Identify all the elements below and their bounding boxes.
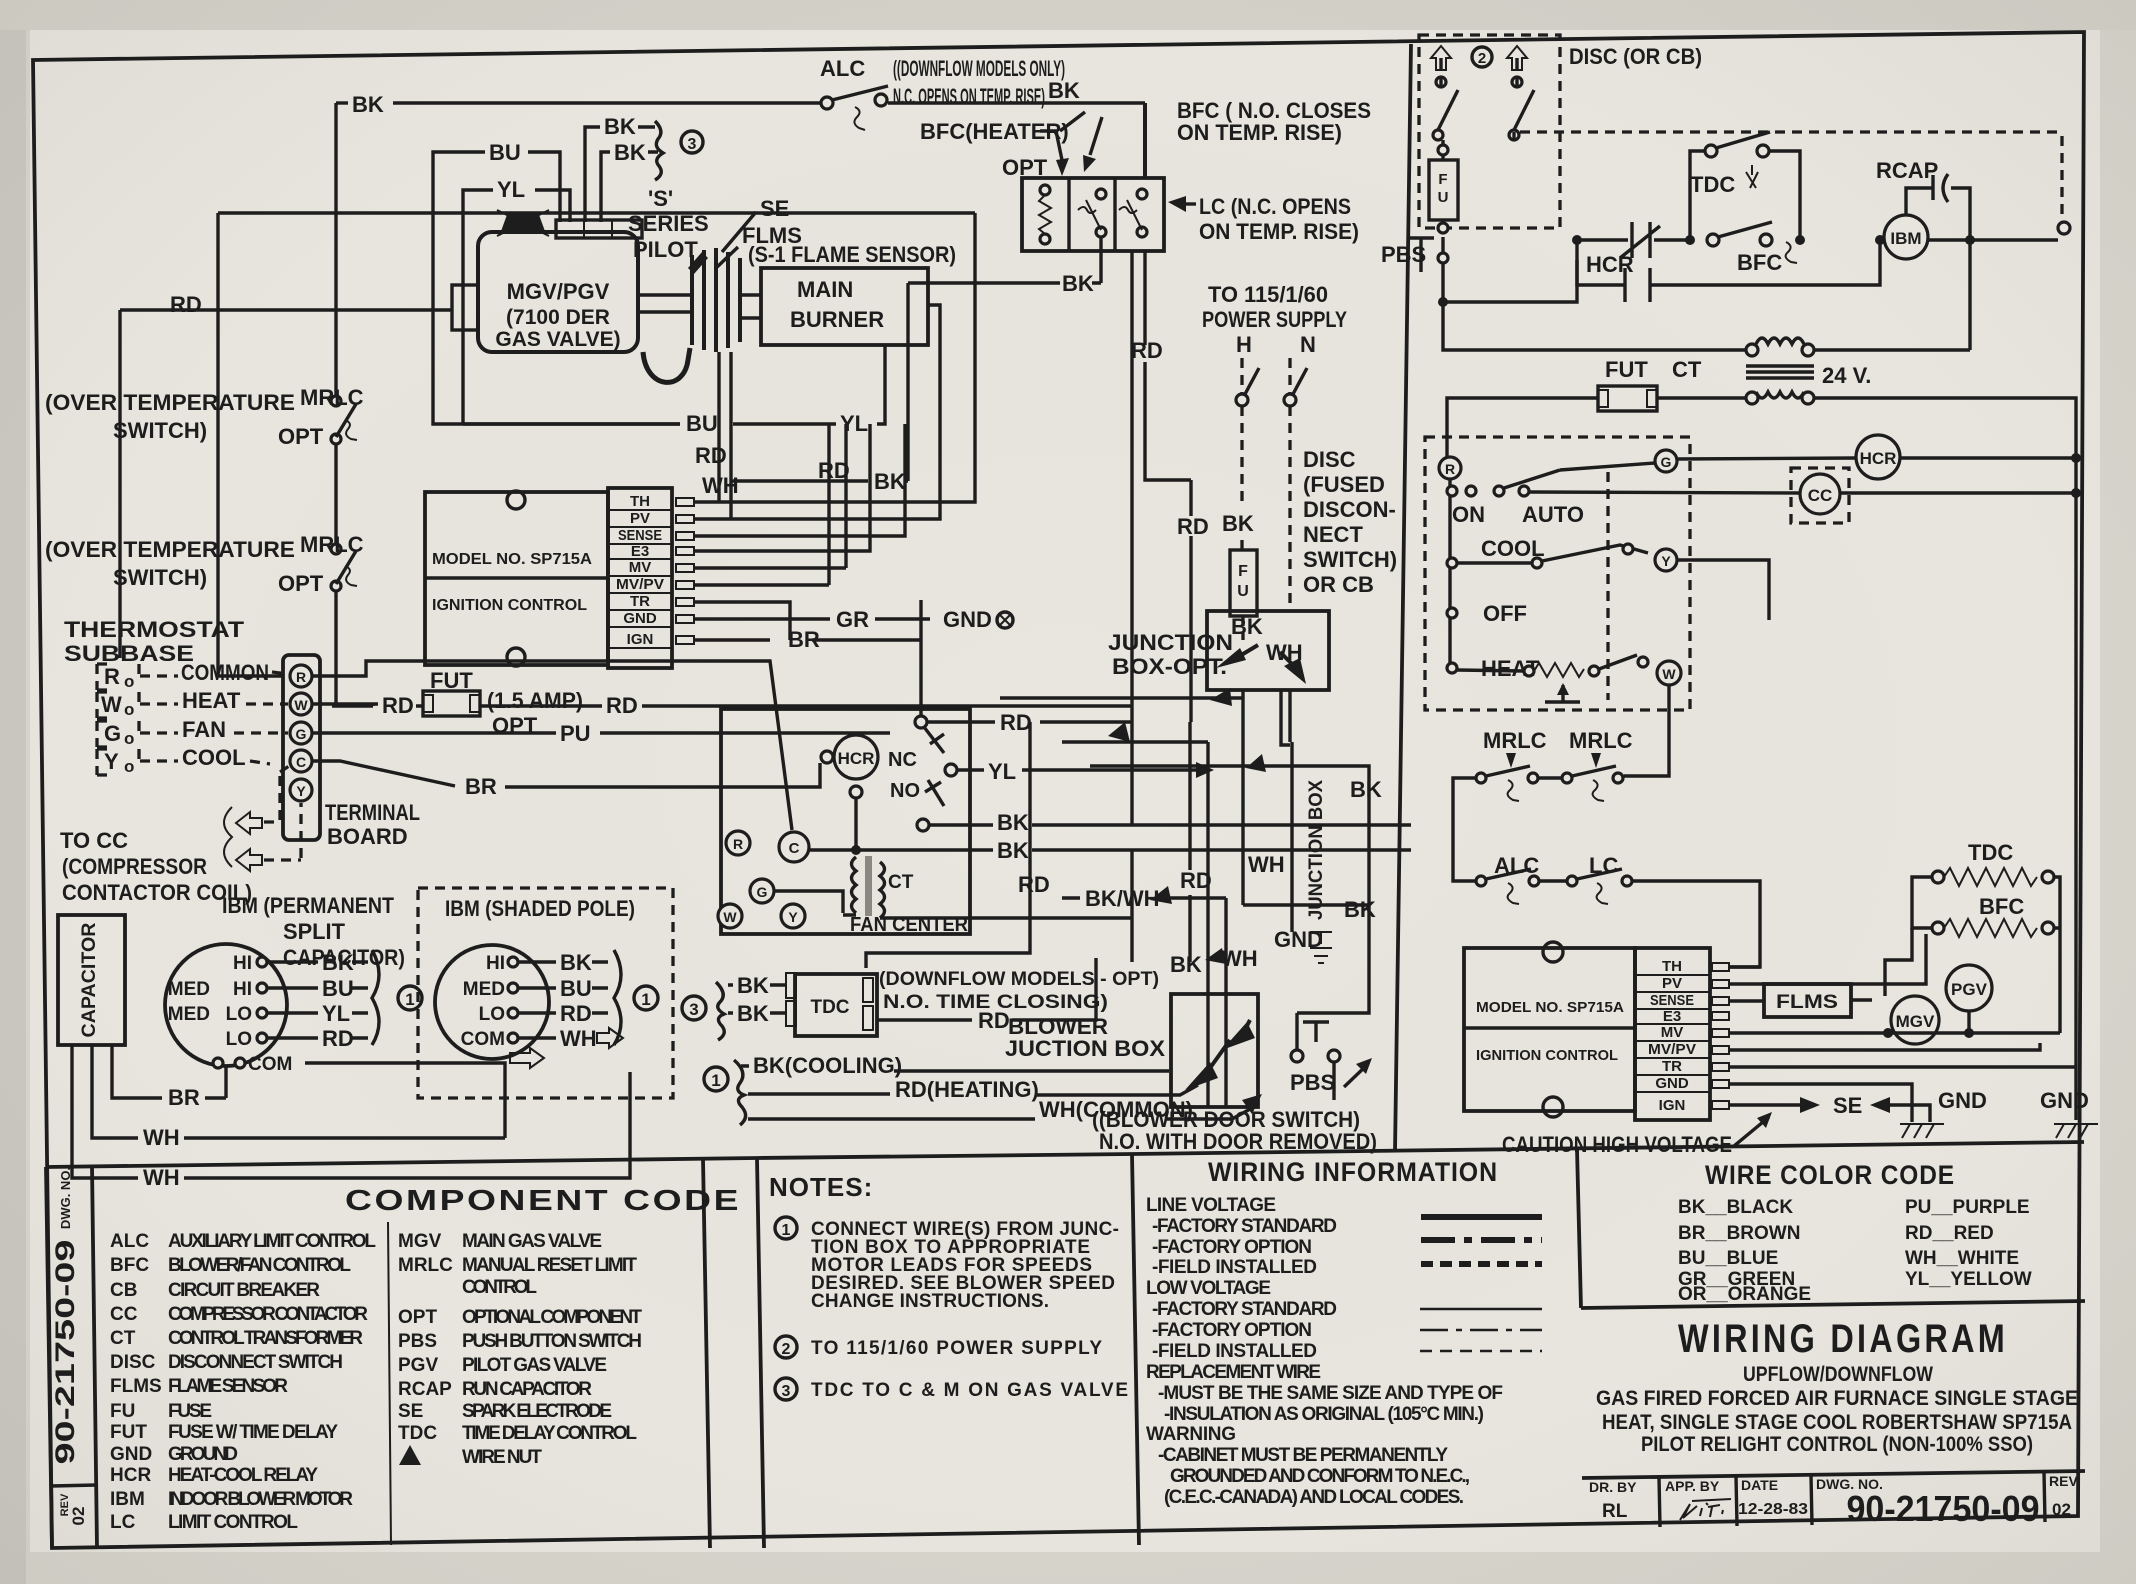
svg-text:HCR: HCR — [110, 1465, 151, 1486]
svg-text:DISC (OR CB): DISC (OR CB) — [1569, 44, 1702, 69]
svg-text:MV/PV: MV/PV — [1648, 1041, 1696, 1058]
svg-text:DATE: DATE — [1741, 1477, 1778, 1493]
svg-text:RD: RD — [978, 1008, 1010, 1033]
svg-text:BK: BK — [352, 92, 384, 117]
svg-text:3: 3 — [688, 136, 697, 153]
svg-text:02: 02 — [69, 1507, 88, 1526]
svg-text:(1.5 AMP): (1.5 AMP) — [487, 688, 583, 713]
svg-text:MODEL NO. SP715A: MODEL NO. SP715A — [432, 551, 592, 568]
svg-text:CC: CC — [1808, 486, 1833, 505]
svg-text:WIRE NUT: WIRE NUT — [462, 1447, 542, 1468]
svg-text:BK/WH: BK/WH — [1085, 886, 1160, 911]
svg-text:PBS: PBS — [398, 1331, 437, 1352]
svg-text:PILOT RELIGHT CONTROL (NON-100: PILOT RELIGHT CONTROL (NON-100% SSO) — [1641, 1433, 2033, 1456]
svg-text:BK: BK — [874, 469, 906, 494]
svg-text:REPLACEMENT WIRE: REPLACEMENT WIRE — [1146, 1362, 1321, 1383]
svg-text:RD: RD — [1131, 338, 1163, 363]
svg-text:GND: GND — [623, 610, 657, 627]
svg-text:1: 1 — [405, 990, 414, 1009]
svg-text:MRLC: MRLC — [300, 532, 364, 557]
svg-text:(C.E.C.-CANADA) AND LOCAL CODE: (C.E.C.-CANADA) AND LOCAL CODES. — [1164, 1487, 1464, 1508]
svg-text:1: 1 — [641, 990, 650, 1009]
svg-text:N: N — [1300, 332, 1316, 357]
svg-text:RCAP: RCAP — [398, 1379, 452, 1400]
svg-text:BFC: BFC — [110, 1255, 149, 1276]
svg-text:COOL: COOL — [182, 745, 246, 770]
svg-text:DISCON-: DISCON- — [1303, 497, 1396, 522]
svg-text:RD: RD — [606, 693, 638, 718]
svg-text:NO: NO — [890, 780, 920, 802]
svg-text:MODEL NO. SP715A: MODEL NO. SP715A — [1476, 999, 1624, 1016]
svg-text:AUXILIARY LIMIT CONTROL: AUXILIARY LIMIT CONTROL — [168, 1231, 376, 1252]
svg-text:LO: LO — [226, 1029, 252, 1050]
svg-text:TO CC: TO CC — [60, 828, 128, 853]
svg-text:MAIN GAS VALVE: MAIN GAS VALVE — [462, 1231, 602, 1252]
svg-text:YL: YL — [497, 177, 525, 202]
svg-text:TIME DELAY CONTROL: TIME DELAY CONTROL — [462, 1423, 637, 1444]
svg-text:RD: RD — [1018, 872, 1050, 897]
svg-text:MGV: MGV — [398, 1231, 442, 1252]
svg-text:MAIN: MAIN — [797, 277, 853, 302]
svg-text:WH: WH — [1221, 946, 1258, 971]
svg-text:BOARD: BOARD — [327, 824, 408, 849]
svg-text:TDC: TDC — [1690, 172, 1735, 197]
svg-text:SE: SE — [1833, 1093, 1862, 1118]
svg-text:PV: PV — [1662, 975, 1682, 992]
svg-text:LO: LO — [226, 1004, 252, 1025]
svg-text:DISC: DISC — [1303, 447, 1356, 472]
svg-text:MGV: MGV — [1896, 1012, 1935, 1031]
svg-text:LC (N.C. OPENS: LC (N.C. OPENS — [1199, 194, 1351, 219]
svg-text:W: W — [723, 909, 737, 925]
svg-text:IBM (PERMANENT: IBM (PERMANENT — [222, 893, 394, 918]
svg-text:BK: BK — [737, 1001, 769, 1026]
svg-text:YL: YL — [322, 1001, 350, 1026]
svg-text:LOW VOLTAGE: LOW VOLTAGE — [1146, 1278, 1271, 1299]
svg-text:LO: LO — [479, 1004, 505, 1025]
svg-text:(DOWNFLOW MODELS - OPT): (DOWNFLOW MODELS - OPT) — [879, 969, 1159, 990]
svg-text:RD: RD — [322, 1026, 354, 1051]
svg-text:BK(COOLING): BK(COOLING) — [753, 1053, 902, 1078]
svg-text:G: G — [1661, 454, 1672, 470]
svg-text:LC: LC — [110, 1512, 136, 1533]
svg-text:LIMIT CONTROL: LIMIT CONTROL — [168, 1512, 298, 1533]
svg-text:PILOT GAS VALVE: PILOT GAS VALVE — [462, 1355, 607, 1376]
svg-text:Y: Y — [104, 749, 119, 774]
svg-text:BFC: BFC — [1979, 894, 2024, 919]
svg-text:TDC: TDC — [1968, 840, 2013, 865]
svg-text:BU__BLUE: BU__BLUE — [1678, 1248, 1778, 1269]
svg-text:3: 3 — [782, 1383, 791, 1400]
svg-text:F: F — [1438, 171, 1447, 188]
svg-text:BK: BK — [614, 140, 646, 165]
svg-text:IBM: IBM — [110, 1489, 145, 1510]
svg-text:FLMS: FLMS — [110, 1376, 162, 1397]
svg-text:GAS FIRED FORCED AIR FURNACE S: GAS FIRED FORCED AIR FURNACE SINGLE STAG… — [1596, 1387, 2078, 1410]
svg-text:COOL: COOL — [1481, 536, 1545, 561]
svg-text:Y: Y — [788, 909, 798, 925]
svg-text:BK: BK — [1231, 614, 1263, 639]
svg-text:FUT: FUT — [430, 668, 473, 693]
svg-text:IBM: IBM — [1890, 229, 1921, 248]
svg-text:RD: RD — [382, 693, 414, 718]
svg-text:CT: CT — [1672, 357, 1702, 382]
svg-text:HEAT: HEAT — [182, 688, 241, 713]
svg-text:FUSE: FUSE — [168, 1401, 212, 1422]
svg-text:BU: BU — [560, 976, 592, 1001]
svg-text:GND: GND — [943, 607, 992, 632]
svg-text:RD: RD — [1177, 514, 1209, 539]
svg-text:TH: TH — [1662, 958, 1682, 975]
svg-text:12-28-83: 12-28-83 — [1738, 1501, 1808, 1518]
svg-text:OPT: OPT — [278, 424, 324, 449]
svg-text:NC: NC — [888, 749, 917, 771]
svg-text:o: o — [124, 700, 134, 719]
svg-text:PGV: PGV — [1951, 980, 1988, 999]
svg-text:CONTROL TRANSFORMER: CONTROL TRANSFORMER — [168, 1328, 363, 1349]
svg-text:SPLIT: SPLIT — [283, 919, 346, 944]
svg-text:IGN: IGN — [627, 631, 654, 648]
svg-text:((DOWNFLOW MODELS ONLY): ((DOWNFLOW MODELS ONLY) — [893, 56, 1065, 81]
svg-text:SWITCH): SWITCH) — [113, 565, 207, 590]
svg-text:HI: HI — [233, 979, 252, 1000]
svg-text:TH: TH — [630, 493, 650, 510]
svg-text:GROUNDED AND CONFORM TO N.E.C.: GROUNDED AND CONFORM TO N.E.C., — [1170, 1466, 1470, 1487]
svg-text:-FIELD INSTALLED: -FIELD INSTALLED — [1152, 1341, 1317, 1362]
svg-text:BK__BLACK: BK__BLACK — [1678, 1197, 1793, 1218]
svg-text:C: C — [296, 754, 306, 770]
svg-text:IGN: IGN — [1659, 1097, 1686, 1114]
svg-text:APP. BY: APP. BY — [1665, 1478, 1720, 1494]
svg-text:JUCTION BOX: JUCTION BOX — [1005, 1036, 1165, 1061]
svg-text:REV: REV — [2049, 1473, 2078, 1489]
svg-text:IGNITION CONTROL: IGNITION CONTROL — [432, 597, 587, 614]
svg-text:o: o — [124, 729, 134, 748]
svg-text:YL__YELLOW: YL__YELLOW — [1905, 1269, 2032, 1290]
svg-text:G: G — [296, 726, 307, 742]
svg-text:MRLC: MRLC — [300, 385, 364, 410]
svg-text:o: o — [124, 672, 134, 691]
svg-text:TDC: TDC — [810, 997, 849, 1018]
svg-text:WH: WH — [560, 1026, 597, 1051]
svg-text:TO 115/1/60 POWER SUPPLY: TO 115/1/60 POWER SUPPLY — [811, 1338, 1102, 1359]
svg-text:N.C. OPENS ON TEMP. RISE): N.C. OPENS ON TEMP. RISE) — [893, 84, 1045, 109]
svg-text:R: R — [296, 669, 306, 685]
svg-text:BK: BK — [604, 114, 636, 139]
svg-text:ALC: ALC — [110, 1231, 149, 1252]
svg-text:'S': 'S' — [648, 186, 673, 211]
svg-text:MRLC: MRLC — [1569, 728, 1633, 753]
svg-text:E3: E3 — [631, 543, 649, 560]
svg-text:E3: E3 — [1663, 1008, 1681, 1025]
svg-text:(FUSED: (FUSED — [1303, 472, 1385, 497]
svg-text:W: W — [101, 692, 122, 717]
svg-text:RD: RD — [1000, 710, 1032, 735]
svg-text:HEAT, SINGLE STAGE COOL ROBERT: HEAT, SINGLE STAGE COOL ROBERTSHAW SP715… — [1602, 1411, 2072, 1434]
svg-text:SUBBASE: SUBBASE — [64, 641, 194, 666]
svg-text:(7100 DER: (7100 DER — [506, 306, 610, 329]
svg-text:BU: BU — [322, 976, 354, 1001]
svg-text:BK: BK — [1350, 777, 1382, 802]
svg-text:Y: Y — [1661, 553, 1671, 569]
svg-text:BK: BK — [997, 810, 1029, 835]
svg-text:OR__ORANGE: OR__ORANGE — [1678, 1284, 1811, 1305]
svg-text:R: R — [1445, 461, 1455, 477]
svg-text:3: 3 — [689, 1000, 698, 1019]
svg-text:HEAT-COOL RELAY: HEAT-COOL RELAY — [168, 1465, 318, 1486]
svg-text:THERMOSTAT: THERMOSTAT — [64, 617, 245, 642]
svg-text:24 V.: 24 V. — [1822, 363, 1871, 388]
svg-text:COMMON: COMMON — [181, 660, 269, 685]
svg-text:BURNER: BURNER — [790, 307, 884, 332]
svg-text:C: C — [789, 840, 800, 857]
svg-text:OFF: OFF — [1483, 601, 1527, 626]
svg-text:WARNING: WARNING — [1146, 1424, 1236, 1445]
svg-text:POWER SUPPLY: POWER SUPPLY — [1202, 307, 1347, 332]
svg-text:PU: PU — [560, 721, 591, 746]
svg-text:WIRING DIAGRAM: WIRING DIAGRAM — [1678, 1317, 2008, 1361]
svg-text:COM: COM — [248, 1054, 292, 1075]
svg-text:CB: CB — [110, 1280, 137, 1301]
svg-text:U: U — [1438, 189, 1449, 206]
svg-text:BU: BU — [489, 140, 521, 165]
svg-text:F: F — [1238, 563, 1248, 580]
svg-text:(S-1 FLAME SENSOR): (S-1 FLAME SENSOR) — [748, 242, 956, 267]
svg-text:RD: RD — [560, 1001, 592, 1026]
svg-text:PBS: PBS — [1290, 1070, 1335, 1095]
svg-text:BOX-OPT.: BOX-OPT. — [1112, 654, 1227, 679]
svg-text:RD: RD — [818, 458, 850, 483]
svg-text:IBM (SHADED POLE): IBM (SHADED POLE) — [445, 896, 635, 921]
svg-text:MED: MED — [463, 979, 505, 1000]
svg-text:BR: BR — [465, 774, 497, 799]
svg-text:CAPACITOR: CAPACITOR — [79, 922, 100, 1037]
svg-text:PUSH BUTTON SWITCH: PUSH BUTTON SWITCH — [462, 1331, 642, 1352]
svg-text:OR CB: OR CB — [1303, 572, 1374, 597]
svg-text:2: 2 — [1478, 50, 1486, 67]
svg-text:SERIES: SERIES — [628, 211, 709, 236]
svg-text:BK: BK — [997, 838, 1029, 863]
svg-text:BK: BK — [1344, 897, 1376, 922]
svg-text:MED: MED — [168, 1004, 210, 1025]
svg-text:NOTES:: NOTES: — [769, 1172, 873, 1202]
svg-text:-FACTORY STANDARD: -FACTORY STANDARD — [1152, 1216, 1337, 1237]
svg-text:COMPONENT CODE: COMPONENT CODE — [345, 1185, 741, 1217]
svg-text:2: 2 — [782, 1341, 791, 1358]
svg-text:GROUND: GROUND — [168, 1444, 238, 1465]
svg-text:-MUST BE THE SAME SIZE AND TYP: -MUST BE THE SAME SIZE AND TYPE OF — [1158, 1383, 1503, 1404]
svg-text:FAN: FAN — [182, 717, 226, 742]
svg-text:INDOOR BLOWER MOTOR: INDOOR BLOWER MOTOR — [168, 1489, 353, 1510]
svg-text:GND: GND — [1938, 1088, 1987, 1113]
svg-text:HI: HI — [486, 953, 505, 974]
svg-text:Y: Y — [296, 783, 306, 799]
svg-text:RUN CAPACITOR: RUN CAPACITOR — [462, 1379, 592, 1400]
svg-text:DISC: DISC — [110, 1352, 156, 1373]
svg-text:CT: CT — [888, 872, 914, 893]
svg-text:COMPRESSOR CONTACTOR: COMPRESSOR CONTACTOR — [168, 1304, 368, 1325]
svg-text:BK: BK — [322, 950, 354, 975]
svg-text:-FACTORY OPTION: -FACTORY OPTION — [1152, 1320, 1312, 1341]
svg-text:RD: RD — [695, 443, 727, 468]
svg-text:BK: BK — [560, 950, 592, 975]
svg-text:U: U — [1237, 583, 1249, 600]
svg-text:SWITCH): SWITCH) — [1303, 547, 1397, 572]
svg-text:-FACTORY OPTION: -FACTORY OPTION — [1152, 1237, 1312, 1258]
svg-text:BK: BK — [737, 973, 769, 998]
svg-text:N.O. WITH DOOR REMOVED): N.O. WITH DOOR REMOVED) — [1099, 1129, 1377, 1154]
svg-text:GR: GR — [836, 607, 869, 632]
svg-text:DR. BY: DR. BY — [1589, 1479, 1637, 1495]
svg-text:MGV/PGV: MGV/PGV — [507, 279, 610, 304]
svg-text:FUT: FUT — [1605, 357, 1648, 382]
svg-text:BK: BK — [1048, 78, 1080, 103]
svg-text:G: G — [757, 884, 768, 900]
svg-text:WH: WH — [1248, 852, 1285, 877]
svg-text:JUNCTION: JUNCTION — [1108, 630, 1233, 655]
svg-text:CC: CC — [110, 1304, 138, 1325]
svg-text:FUT: FUT — [110, 1422, 147, 1443]
svg-text:LINE VOLTAGE: LINE VOLTAGE — [1146, 1195, 1276, 1216]
svg-text:o: o — [124, 757, 134, 776]
svg-text:G: G — [104, 721, 121, 746]
svg-text:FUSE W/ TIME DELAY: FUSE W/ TIME DELAY — [168, 1422, 338, 1443]
svg-text:90-21750-09: 90-21750-09 — [50, 1240, 80, 1465]
svg-text:TERMINAL: TERMINAL — [325, 800, 420, 825]
svg-text:BLOWER/FAN CONTROL: BLOWER/FAN CONTROL — [168, 1255, 351, 1276]
svg-text:BK: BK — [1222, 511, 1254, 536]
svg-text:(COMPRESSOR: (COMPRESSOR — [62, 854, 207, 879]
svg-text:YL: YL — [840, 411, 868, 436]
svg-text:BK: BK — [1170, 952, 1202, 977]
svg-text:YL: YL — [988, 759, 1016, 784]
svg-text:SPARK ELECTRODE: SPARK ELECTRODE — [462, 1401, 612, 1422]
svg-text:-FIELD INSTALLED: -FIELD INSTALLED — [1152, 1257, 1317, 1278]
svg-text:90-21750-09: 90-21750-09 — [1847, 1488, 2040, 1529]
svg-text:NECT: NECT — [1303, 522, 1363, 547]
svg-text:RD: RD — [170, 292, 202, 317]
svg-text:BK: BK — [1062, 271, 1094, 296]
svg-text:ON TEMP. RISE): ON TEMP. RISE) — [1177, 120, 1342, 145]
svg-text:OPT: OPT — [278, 571, 324, 596]
svg-text:BR: BR — [168, 1085, 200, 1110]
svg-text:SWITCH): SWITCH) — [113, 418, 207, 443]
svg-text:WIRE COLOR CODE: WIRE COLOR CODE — [1705, 1160, 1955, 1190]
svg-text:TR: TR — [630, 593, 650, 610]
svg-text:CHANGE INSTRUCTIONS.: CHANGE INSTRUCTIONS. — [811, 1291, 1049, 1312]
svg-text:SE: SE — [760, 196, 789, 221]
svg-text:HI: HI — [233, 953, 252, 974]
svg-text:WIRING INFORMATION: WIRING INFORMATION — [1208, 1157, 1498, 1187]
svg-text:SENSE: SENSE — [1650, 992, 1694, 1009]
svg-text:OPT: OPT — [398, 1307, 437, 1328]
svg-text:MRLC: MRLC — [398, 1255, 453, 1276]
svg-text:RCAP: RCAP — [1876, 158, 1938, 183]
svg-text:GND: GND — [2040, 1088, 2089, 1113]
svg-text:(OVER TEMPERATURE: (OVER TEMPERATURE — [45, 537, 295, 562]
svg-text:W: W — [1662, 666, 1676, 682]
svg-text:COM: COM — [461, 1029, 505, 1050]
svg-text:RL: RL — [1602, 1501, 1628, 1522]
svg-text:MED: MED — [168, 979, 210, 1000]
svg-text:BR: BR — [788, 627, 820, 652]
svg-text:CT: CT — [110, 1328, 136, 1349]
svg-text:-FACTORY STANDARD: -FACTORY STANDARD — [1152, 1299, 1337, 1320]
svg-text:GAS VALVE): GAS VALVE) — [495, 328, 620, 351]
svg-text:MRLC: MRLC — [1483, 728, 1547, 753]
svg-text:GND: GND — [1655, 1075, 1689, 1092]
svg-text:PILOT: PILOT — [633, 237, 698, 262]
svg-text:SENSE: SENSE — [618, 527, 662, 544]
svg-text:HCR: HCR — [838, 749, 875, 768]
svg-text:WH: WH — [143, 1125, 180, 1150]
svg-text:FLMS: FLMS — [1776, 992, 1838, 1013]
svg-text:1: 1 — [782, 1222, 791, 1239]
svg-text:BU: BU — [686, 411, 718, 436]
svg-text:CAUTION HIGH VOLTAGE: CAUTION HIGH VOLTAGE — [1502, 1132, 1732, 1157]
svg-text:-INSULATION AS ORIGINAL (105°C: -INSULATION AS ORIGINAL (105°C MIN.) — [1164, 1404, 1484, 1425]
svg-text:WH: WH — [702, 473, 739, 498]
svg-text:MV/PV: MV/PV — [616, 576, 664, 593]
svg-text:GND: GND — [110, 1444, 152, 1465]
svg-text:1: 1 — [711, 1071, 720, 1090]
svg-text:FU: FU — [110, 1401, 135, 1422]
svg-text:JUNCTION BOX: JUNCTION BOX — [1306, 780, 1327, 920]
svg-text:MV: MV — [1661, 1024, 1684, 1041]
svg-text:WH: WH — [143, 1165, 180, 1190]
svg-text:PV: PV — [630, 510, 650, 527]
svg-text:TDC TO C & M ON GAS VALVE: TDC TO C & M ON GAS VALVE — [811, 1380, 1128, 1401]
svg-text:ON TEMP. RISE): ON TEMP. RISE) — [1199, 219, 1359, 244]
svg-text:IGNITION CONTROL: IGNITION CONTROL — [1476, 1047, 1618, 1064]
svg-text:AUTO: AUTO — [1522, 502, 1584, 527]
svg-text:R: R — [733, 836, 743, 852]
svg-text:MV: MV — [629, 559, 652, 576]
svg-text:OPTIONAL COMPONENT: OPTIONAL COMPONENT — [462, 1307, 642, 1328]
svg-text:ALC: ALC — [820, 56, 865, 81]
svg-text:WH__WHITE: WH__WHITE — [1905, 1248, 2019, 1269]
svg-text:TDC: TDC — [398, 1423, 437, 1444]
svg-text:UPFLOW/DOWNFLOW: UPFLOW/DOWNFLOW — [1743, 1363, 1933, 1386]
svg-text:HCR: HCR — [1860, 449, 1897, 468]
svg-text:R: R — [104, 664, 120, 689]
svg-text:DISCONNECT SWITCH: DISCONNECT SWITCH — [168, 1352, 343, 1373]
svg-text:02: 02 — [2052, 1500, 2071, 1519]
svg-text:W: W — [294, 697, 308, 713]
svg-text:H: H — [1236, 332, 1252, 357]
svg-text:RD__RED: RD__RED — [1905, 1223, 1994, 1244]
svg-text:PGV: PGV — [398, 1355, 438, 1376]
svg-text:BR__BROWN: BR__BROWN — [1678, 1223, 1800, 1244]
svg-text:ON: ON — [1452, 502, 1485, 527]
svg-text:TR: TR — [1662, 1058, 1682, 1075]
svg-text:MANUAL RESET LIMIT: MANUAL RESET LIMIT — [462, 1255, 637, 1276]
svg-text:(OVER TEMPERATURE: (OVER TEMPERATURE — [45, 390, 295, 415]
svg-text:RD(HEATING): RD(HEATING) — [895, 1077, 1039, 1102]
svg-text:PU__PURPLE: PU__PURPLE — [1905, 1197, 2030, 1218]
svg-text:SE: SE — [398, 1401, 423, 1422]
svg-text:CONTROL: CONTROL — [462, 1277, 537, 1298]
svg-text:-CABINET MUST BE PERMANENTLY: -CABINET MUST BE PERMANENTLY — [1158, 1445, 1448, 1466]
svg-text:FLAME SENSOR: FLAME SENSOR — [168, 1376, 288, 1397]
svg-text:TO 115/1/60: TO 115/1/60 — [1208, 282, 1328, 307]
svg-text:CIRCUIT BREAKER: CIRCUIT BREAKER — [168, 1280, 320, 1301]
svg-text:BFC: BFC — [1737, 250, 1782, 275]
